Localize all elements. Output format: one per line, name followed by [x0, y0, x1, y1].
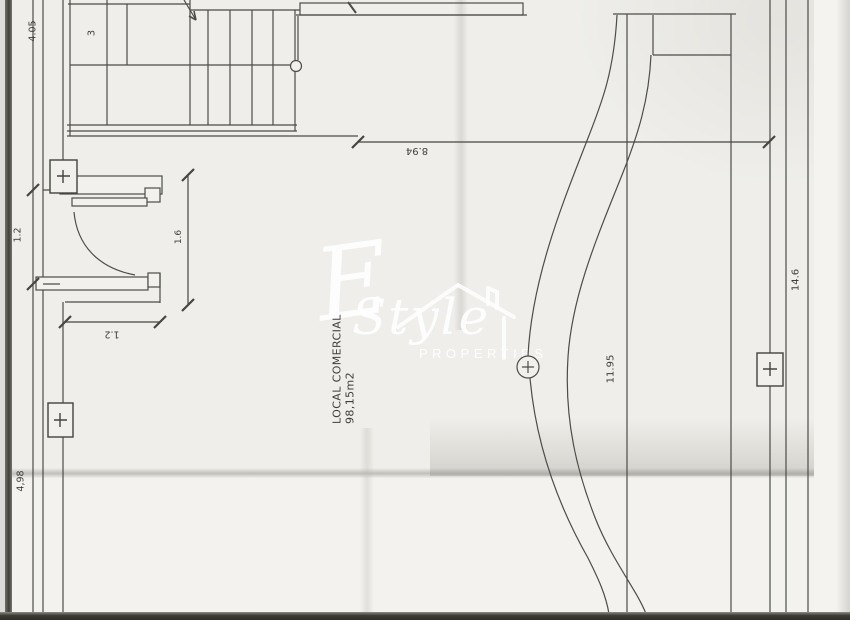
curved-wall — [528, 15, 651, 614]
room-area: 98,15m2 — [344, 314, 357, 424]
dim-label-left-mid: 1.2 — [14, 227, 25, 242]
registration-cross-icon — [50, 160, 77, 193]
registration-cross-icon — [757, 353, 783, 386]
scanned-floorplan-page: E Style PROPERTIES — [0, 0, 850, 620]
dim-label-top-width: 8.94 — [406, 144, 428, 156]
room-number-label: 3 — [86, 30, 98, 36]
dim-label-left-top: 4.05 — [29, 20, 40, 41]
door-swing-arc — [74, 212, 135, 275]
room-name: LOCAL COMERCIAL — [331, 314, 344, 424]
scan-left-edge — [5, 0, 12, 620]
floorplan-linework — [0, 0, 850, 620]
handrail-newel-circle — [291, 61, 302, 72]
stairs-group — [67, 0, 358, 136]
room-label: LOCAL COMERCIAL 98,15m2 — [331, 314, 356, 424]
dimension-lines — [27, 136, 775, 328]
survey-point-icon — [517, 356, 539, 378]
dim-label-door-wall: 1.2 — [104, 328, 119, 339]
dim-label-left-bottom: 4,98 — [17, 470, 28, 491]
dim-label-right-height: 14.6 — [790, 269, 802, 291]
dim-label-curve: 11.95 — [605, 355, 617, 384]
scan-bottom-edge — [0, 612, 850, 620]
dim-label-door-clear: 1.6 — [174, 230, 184, 244]
registration-cross-icon — [48, 403, 73, 437]
